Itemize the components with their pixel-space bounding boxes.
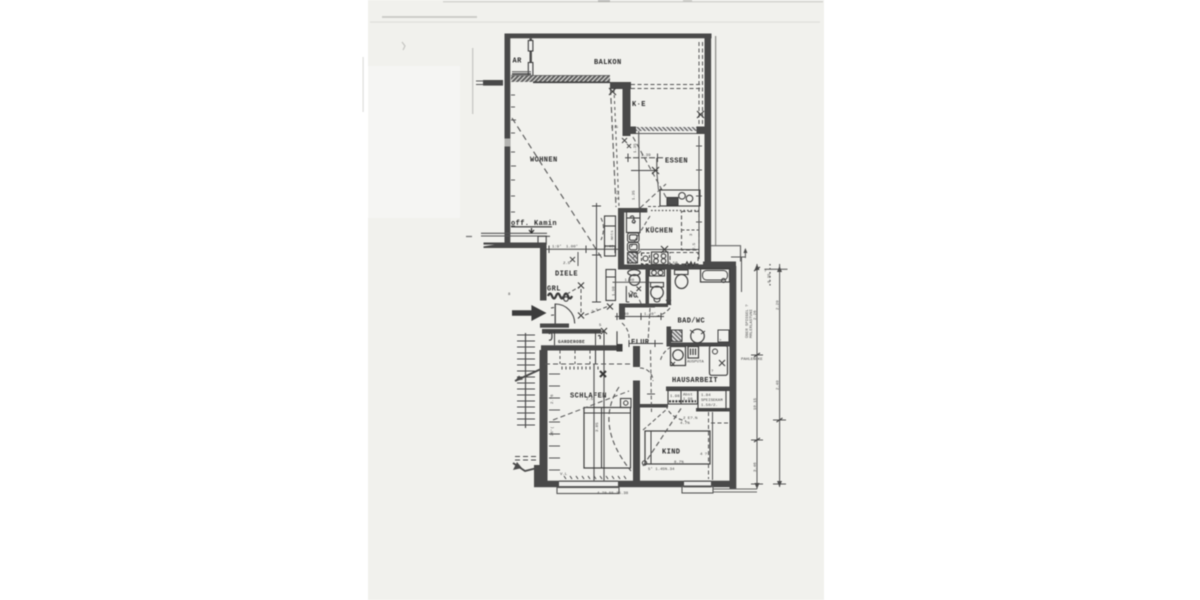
svg-text:2.5: 2.5 <box>586 398 594 402</box>
svg-text:3.46: 3.46 <box>754 462 758 472</box>
svg-text:PAHLENCKE: PAHLENCKE <box>741 358 763 362</box>
svg-text:0.35: 0.35 <box>768 273 772 283</box>
svg-text:10.15: 10.15 <box>754 397 758 410</box>
svg-text:mnts: mnts <box>611 230 615 240</box>
svg-text:1.84: 1.84 <box>701 394 711 398</box>
svg-text:Abst: Abst <box>683 393 693 398</box>
svg-text:05: 05 <box>650 262 655 266</box>
svg-text:2:5: 2:5 <box>611 126 619 130</box>
svg-text:8.7%: 8.7% <box>674 461 684 465</box>
svg-text:2 E?.%: 2 E?.% <box>683 417 698 421</box>
svg-text:BALKON: BALKON <box>594 59 622 67</box>
svg-text:1.98: 1.98 <box>683 398 693 402</box>
svg-text:5° 1.45%.34: 5° 1.45%.34 <box>648 467 675 472</box>
svg-text:4.7%: 4.7% <box>680 422 690 426</box>
svg-text:1:40: 1:40 <box>619 313 629 317</box>
svg-text:1.40: 1.40 <box>627 262 637 266</box>
svg-text:3.22: 3.22 <box>617 190 621 200</box>
svg-text:GARDEROBE: GARDEROBE <box>558 339 585 345</box>
svg-text:WOHNEN: WOHNEN <box>530 157 558 165</box>
svg-text:2.26: 2.26 <box>754 310 758 320</box>
svg-text:2.20: 2.20 <box>777 300 781 310</box>
svg-text:4 ?: 4 ? <box>700 453 708 457</box>
svg-text:2.40: 2.40 <box>777 380 781 390</box>
svg-text:1.35: 1.35 <box>633 190 637 200</box>
svg-text:HAUSARBEIT: HAUSARBEIT <box>672 377 718 385</box>
svg-text:K·E: K·E <box>632 101 646 109</box>
svg-text:GRL: GRL <box>547 286 561 294</box>
svg-text:SPEISEKAM: SPEISEKAM <box>701 399 723 403</box>
svg-text:3.85: 3.85 <box>596 422 600 432</box>
svg-text:1.98: 1.98 <box>613 286 617 296</box>
svg-text:KIND: KIND <box>662 449 680 457</box>
svg-text:2.5: 2.5 <box>693 242 697 250</box>
svg-text:V.L: V.L <box>560 473 568 477</box>
svg-text:ESSEN: ESSEN <box>665 158 688 166</box>
svg-text:2.50: 2.50 <box>668 262 678 266</box>
svg-text:1.00°: 1.00° <box>566 245 578 250</box>
svg-text:2.76: 2.76 <box>551 394 555 404</box>
svg-text:DIELE: DIELE <box>555 271 578 279</box>
svg-text:2.5: 2.5 <box>563 262 571 266</box>
svg-text:WC: WC <box>629 293 638 301</box>
svg-text:1.40: 1.40 <box>625 279 635 283</box>
svg-text:1:9°: 1:9° <box>552 245 562 250</box>
svg-text:AR: AR <box>513 58 523 66</box>
svg-text:AUSPUTA: AUSPUTA <box>687 361 704 365</box>
svg-text:1.39: 1.39 <box>641 154 651 158</box>
svg-text:1.35: 1.35 <box>634 143 638 153</box>
svg-text:BAD/WC: BAD/WC <box>678 318 706 326</box>
svg-text:4.70 55.35.38: 4.70 55.35.38 <box>597 492 629 496</box>
svg-text:26'(: 26'( <box>550 426 555 436</box>
svg-text:1.50/2.: 1.50/2. <box>701 403 718 408</box>
svg-text:1.98: 1.98 <box>670 395 680 399</box>
svg-text:KÜCHEN: KÜCHEN <box>646 227 674 236</box>
